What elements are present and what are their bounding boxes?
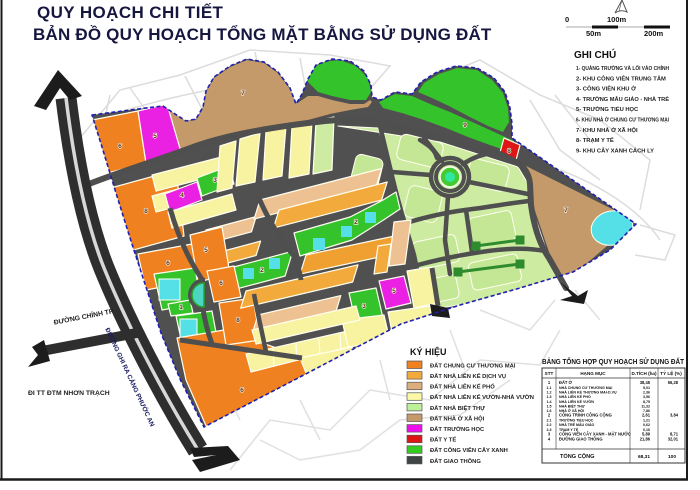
svg-text:BẢNG TỔNG HỢP QUY HOẠCH SỬ DỤN: BẢNG TỔNG HỢP QUY HOẠCH SỬ DỤNG ĐẤT <box>542 356 685 366</box>
svg-text:GHI CHÚ: GHI CHÚ <box>574 48 616 61</box>
svg-text:1.5: 1.5 <box>547 404 552 408</box>
svg-text:ĐẤT NHÀ BIỆT THỰ: ĐẤT NHÀ BIỆT THỰ <box>430 404 485 412</box>
svg-text:ĐẤT GIAO THÔNG: ĐẤT GIAO THÔNG <box>430 457 481 465</box>
svg-text:8: 8 <box>144 208 148 215</box>
svg-text:KÝ HIỆU: KÝ HIỆU <box>410 346 447 357</box>
svg-text:TRƯỜNG TIỂU HỌC: TRƯỜNG TIỂU HỌC <box>559 418 594 423</box>
svg-text:21,86: 21,86 <box>640 436 651 441</box>
svg-text:7: 7 <box>564 207 568 214</box>
svg-text:1- QUẢNG TRƯỜNG VÀ LỐI VÀO CHÍ: 1- QUẢNG TRƯỜNG VÀ LỐI VÀO CHÍNH <box>576 64 669 72</box>
svg-text:8- TRẠM Y TẾ: 8- TRẠM Y TẾ <box>576 137 614 144</box>
svg-text:68,31: 68,31 <box>638 454 650 460</box>
svg-text:ĐẤT Y TẾ: ĐẤT Y TẾ <box>430 437 456 444</box>
svg-text:TỶ LỆ (%): TỶ LỆ (%) <box>660 369 682 376</box>
svg-text:STT: STT <box>545 371 554 376</box>
svg-text:56,28: 56,28 <box>668 380 679 385</box>
svg-text:1.3: 1.3 <box>547 395 552 399</box>
svg-text:ĐẤT NHÀ LIÊN KẾ DỊCH VỤ: ĐẤT NHÀ LIÊN KẾ DỊCH VỤ <box>430 372 506 380</box>
svg-text:ĐẤT TRƯỜNG HỌC: ĐẤT TRƯỜNG HỌC <box>430 425 485 433</box>
svg-text:QUY HOẠCH CHI TIẾT: QUY HOẠCH CHI TIẾT <box>37 3 224 22</box>
svg-text:8: 8 <box>507 148 511 155</box>
svg-text:NHÀ CHUNG CƯ THƯƠNG MẠI: NHÀ CHUNG CƯ THƯƠNG MẠI <box>559 385 612 390</box>
svg-text:2.1: 2.1 <box>547 419 552 423</box>
svg-text:8: 8 <box>236 317 240 324</box>
svg-text:2,36: 2,36 <box>643 391 650 395</box>
svg-text:CÔNG TRÌNH CÔNG CỘNG: CÔNG TRÌNH CÔNG CỘNG <box>559 413 612 418</box>
svg-text:3- CÔNG VIÊN KHU Ở: 3- CÔNG VIÊN KHU Ở <box>576 85 636 93</box>
svg-text:50m: 50m <box>586 29 601 38</box>
svg-text:ĐẤT CÔNG VIÊN CÂY XANH: ĐẤT CÔNG VIÊN CÂY XANH <box>430 446 508 454</box>
svg-text:6: 6 <box>118 143 122 150</box>
svg-text:1.4: 1.4 <box>547 400 552 404</box>
svg-text:NHÀ LIÊN KẾ PHỐ: NHÀ LIÊN KẾ PHỐ <box>559 394 591 399</box>
svg-text:2.2: 2.2 <box>547 423 552 427</box>
svg-text:3: 3 <box>213 177 217 184</box>
svg-text:2: 2 <box>260 267 264 274</box>
svg-text:7- KHU NHÀ Ở XÃ HỘI: 7- KHU NHÀ Ở XÃ HỘI <box>576 126 638 134</box>
svg-text:ĐẤT Ở: ĐẤT Ở <box>559 380 573 385</box>
svg-text:0,62: 0,62 <box>643 423 650 427</box>
svg-text:5: 5 <box>392 288 396 295</box>
svg-text:ĐẤT NHÀ Ở XÃ HỘI: ĐẤT NHÀ Ở XÃ HỘI <box>430 414 485 422</box>
svg-text:D.TÍCH (ha): D.TÍCH (ha) <box>631 369 656 376</box>
svg-text:5: 5 <box>204 247 208 254</box>
svg-text:HẠNG MỤC: HẠNG MỤC <box>580 371 606 376</box>
svg-text:ĐƯỜNG GIAO THÔNG: ĐƯỜNG GIAO THÔNG <box>559 436 603 441</box>
svg-text:NHÀ LIÊN KẾ VƯỜN: NHÀ LIÊN KẾ VƯỜN <box>559 399 594 404</box>
svg-text:11,32: 11,32 <box>641 404 650 408</box>
svg-text:1,21: 1,21 <box>643 419 650 423</box>
svg-text:200m: 200m <box>644 29 664 38</box>
svg-text:2- KHU CÔNG VIÊN TRUNG TÂM: 2- KHU CÔNG VIÊN TRUNG TÂM <box>576 74 666 82</box>
svg-text:4- TRƯỜNG MẪU GIÁO - NHÀ TRẺ: 4- TRƯỜNG MẪU GIÁO - NHÀ TRẺ <box>576 95 669 103</box>
svg-text:9: 9 <box>463 122 467 129</box>
svg-text:NHÀ LIÊN KẾ THƯƠNG MẠI-D.VỤ: NHÀ LIÊN KẾ THƯƠNG MẠI-D.VỤ <box>559 390 617 395</box>
svg-text:6- KHU NHÀ Ở CHUNG CƯ THƯƠNG M: 6- KHU NHÀ Ở CHUNG CƯ THƯƠNG MẠI <box>576 117 669 124</box>
svg-text:6: 6 <box>219 280 223 287</box>
svg-text:3: 3 <box>362 303 366 310</box>
svg-text:ĐI TT ĐTM NHƠN TRẠCH: ĐI TT ĐTM NHƠN TRẠCH <box>28 390 110 397</box>
svg-text:1.1: 1.1 <box>547 386 552 390</box>
svg-text:2,61: 2,61 <box>642 413 651 418</box>
svg-text:3,56: 3,56 <box>643 395 650 399</box>
svg-text:32,01: 32,01 <box>668 436 679 441</box>
svg-text:8,75: 8,75 <box>643 400 650 404</box>
svg-text:ĐẤT NHÀ LIÊN KẾ VƯỜN-NHÀ VƯỜN: ĐẤT NHÀ LIÊN KẾ VƯỜN-NHÀ VƯỜN <box>430 393 534 401</box>
svg-text:NHÀ TRẺ MẪU GIÁO: NHÀ TRẺ MẪU GIÁO <box>559 422 595 427</box>
svg-text:9- KHU CÂY XANH CÁCH LY: 9- KHU CÂY XANH CÁCH LY <box>576 147 654 154</box>
svg-text:NHÀ BIỆT THỰ: NHÀ BIỆT THỰ <box>559 403 585 408</box>
svg-text:5,01: 5,01 <box>643 386 650 390</box>
svg-text:38,45: 38,45 <box>640 380 651 385</box>
svg-text:BẢN ĐỒ QUY HOẠCH TỔNG MẶT BẰNG: BẢN ĐỒ QUY HOẠCH TỔNG MẶT BẰNG SỬ DỤNG Đ… <box>33 25 492 44</box>
svg-text:2: 2 <box>354 219 358 226</box>
svg-text:1: 1 <box>179 304 183 311</box>
svg-text:7: 7 <box>241 90 245 97</box>
svg-text:3,84: 3,84 <box>670 413 679 418</box>
svg-text:6: 6 <box>240 387 244 394</box>
svg-text:0: 0 <box>565 15 569 24</box>
svg-text:100: 100 <box>668 454 676 460</box>
svg-text:1.2: 1.2 <box>547 391 552 395</box>
svg-text:5: 5 <box>153 133 157 140</box>
svg-text:5- TRƯỜNG TIỂU HỌC: 5- TRƯỜNG TIỂU HỌC <box>576 105 639 113</box>
svg-text:TỔNG CỘNG: TỔNG CỘNG <box>560 452 595 460</box>
svg-text:ĐẤT NHÀ LIÊN KẾ PHỐ: ĐẤT NHÀ LIÊN KẾ PHỐ <box>430 383 495 391</box>
svg-text:100m: 100m <box>607 15 627 24</box>
svg-text:ĐẤT CHUNG CƯ THƯƠNG MẠI: ĐẤT CHUNG CƯ THƯƠNG MẠI <box>430 362 516 369</box>
svg-text:4: 4 <box>180 192 184 199</box>
svg-text:6: 6 <box>166 260 170 267</box>
